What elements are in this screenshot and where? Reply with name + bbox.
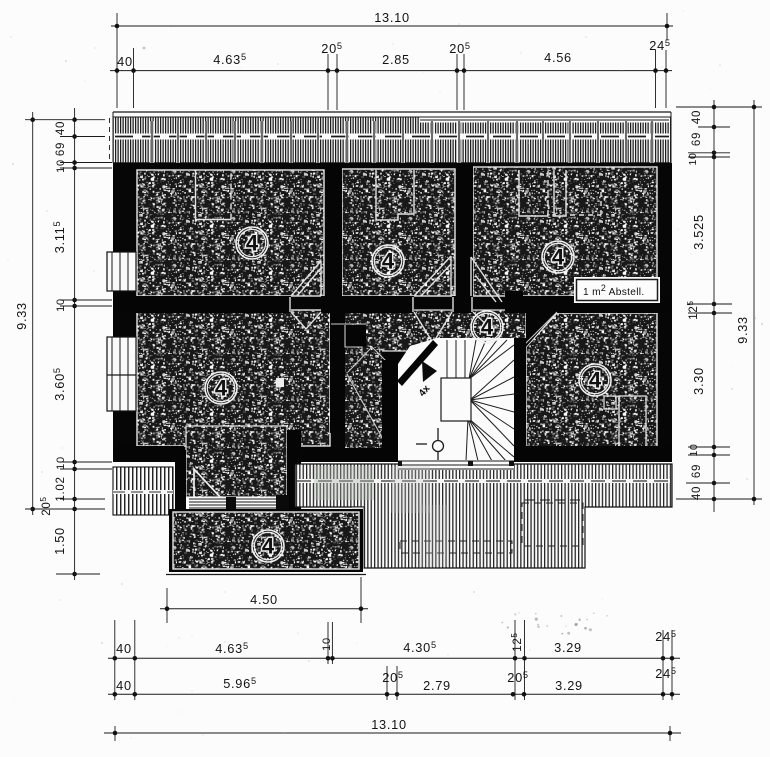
svg-text:3.525: 3.525 [691, 214, 706, 250]
svg-text:3.30: 3.30 [691, 367, 706, 395]
svg-text:10: 10 [55, 298, 67, 312]
svg-text:40: 40 [55, 121, 67, 135]
svg-text:4.50: 4.50 [250, 592, 278, 607]
svg-text:40: 40 [116, 641, 132, 656]
svg-text:4.56: 4.56 [544, 50, 572, 65]
svg-text:40: 40 [691, 486, 703, 500]
svg-text:4: 4 [589, 368, 602, 393]
svg-text:69: 69 [691, 464, 703, 478]
svg-text:4: 4 [262, 534, 275, 559]
svg-text:40: 40 [691, 110, 703, 124]
svg-text:13.10: 13.10 [371, 717, 407, 732]
svg-text:4: 4 [246, 231, 259, 256]
svg-text:10: 10 [687, 152, 699, 165]
svg-text:4: 4 [215, 376, 228, 401]
svg-text:40: 40 [117, 54, 133, 69]
svg-text:40: 40 [116, 678, 132, 693]
svg-text:10: 10 [55, 159, 67, 173]
svg-text:10: 10 [321, 637, 333, 651]
svg-text:1.50: 1.50 [52, 527, 67, 555]
svg-text:10: 10 [55, 456, 67, 470]
svg-text:9.33: 9.33 [14, 302, 29, 330]
svg-text:4: 4 [382, 249, 395, 274]
svg-text:10: 10 [688, 443, 700, 456]
svg-text:4: 4 [552, 245, 565, 270]
svg-text:1.02: 1.02 [55, 476, 67, 501]
svg-text:9.33: 9.33 [735, 316, 750, 344]
svg-text:3.29: 3.29 [555, 678, 583, 693]
svg-text:69: 69 [691, 132, 703, 146]
svg-text:4: 4 [481, 315, 494, 340]
svg-text:13.10: 13.10 [374, 10, 410, 25]
svg-text:2.85: 2.85 [382, 52, 410, 67]
svg-text:3.29: 3.29 [554, 640, 582, 655]
svg-text:2.79: 2.79 [423, 678, 451, 693]
svg-text:69: 69 [55, 142, 67, 156]
